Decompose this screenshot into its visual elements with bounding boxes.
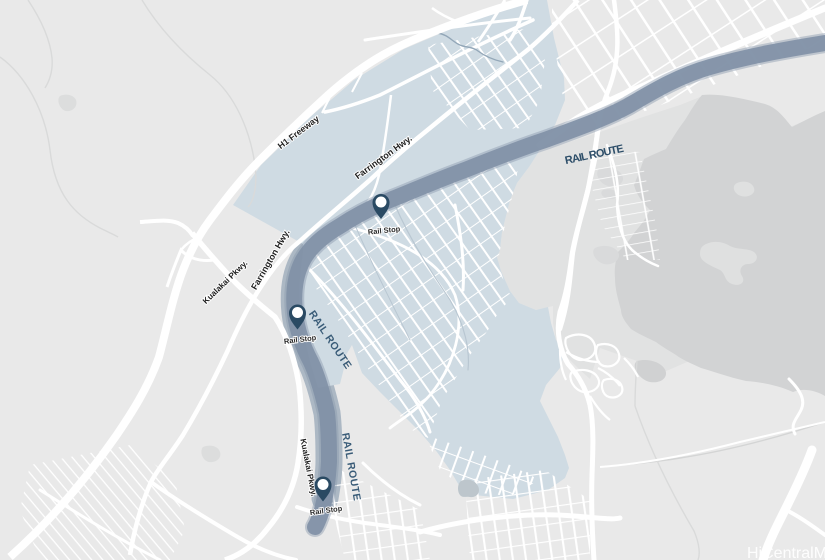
svg-text:HiCentralMLS: HiCentralMLS [747,545,825,560]
